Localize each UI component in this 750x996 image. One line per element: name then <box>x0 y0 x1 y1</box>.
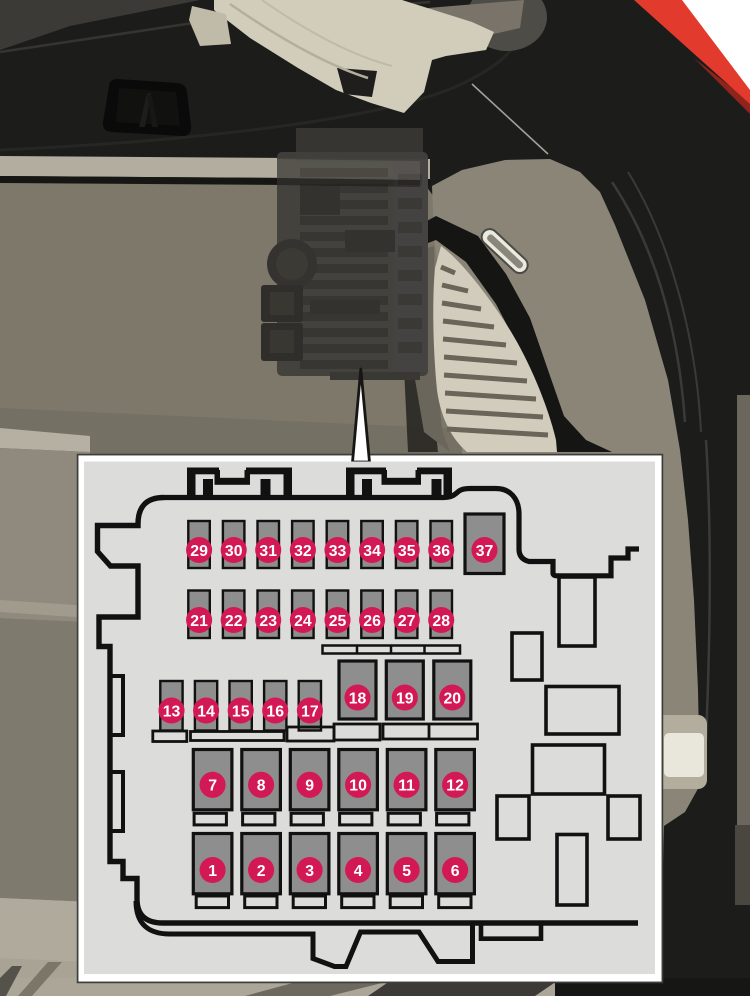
svg-text:34: 34 <box>363 543 381 560</box>
svg-text:14: 14 <box>197 703 215 720</box>
svg-text:17: 17 <box>301 703 319 720</box>
svg-text:1: 1 <box>208 863 217 880</box>
svg-text:4: 4 <box>354 863 363 880</box>
svg-text:7: 7 <box>208 778 217 795</box>
svg-text:20: 20 <box>444 690 462 707</box>
svg-text:33: 33 <box>329 543 347 560</box>
svg-text:6: 6 <box>451 863 460 880</box>
svg-text:28: 28 <box>432 613 450 630</box>
svg-text:15: 15 <box>232 703 250 720</box>
svg-text:32: 32 <box>294 543 312 560</box>
svg-text:11: 11 <box>398 778 415 795</box>
svg-text:21: 21 <box>190 613 208 630</box>
svg-text:29: 29 <box>190 543 208 560</box>
svg-text:18: 18 <box>349 690 367 707</box>
svg-text:12: 12 <box>446 778 464 795</box>
svg-text:37: 37 <box>476 543 494 560</box>
svg-text:27: 27 <box>398 613 416 630</box>
svg-text:31: 31 <box>259 543 277 560</box>
svg-text:16: 16 <box>266 703 284 720</box>
svg-text:8: 8 <box>257 778 266 795</box>
svg-text:26: 26 <box>363 613 381 630</box>
svg-text:36: 36 <box>432 543 450 560</box>
svg-text:2: 2 <box>257 863 266 880</box>
svg-text:13: 13 <box>163 703 181 720</box>
svg-text:30: 30 <box>225 543 243 560</box>
svg-text:19: 19 <box>396 690 414 707</box>
svg-text:24: 24 <box>294 613 312 630</box>
svg-text:23: 23 <box>259 613 277 630</box>
svg-text:3: 3 <box>305 863 314 880</box>
svg-text:9: 9 <box>305 778 314 795</box>
svg-text:25: 25 <box>329 613 347 630</box>
svg-text:5: 5 <box>402 863 411 880</box>
svg-text:22: 22 <box>225 613 243 630</box>
svg-text:10: 10 <box>349 778 367 795</box>
svg-text:35: 35 <box>398 543 416 560</box>
